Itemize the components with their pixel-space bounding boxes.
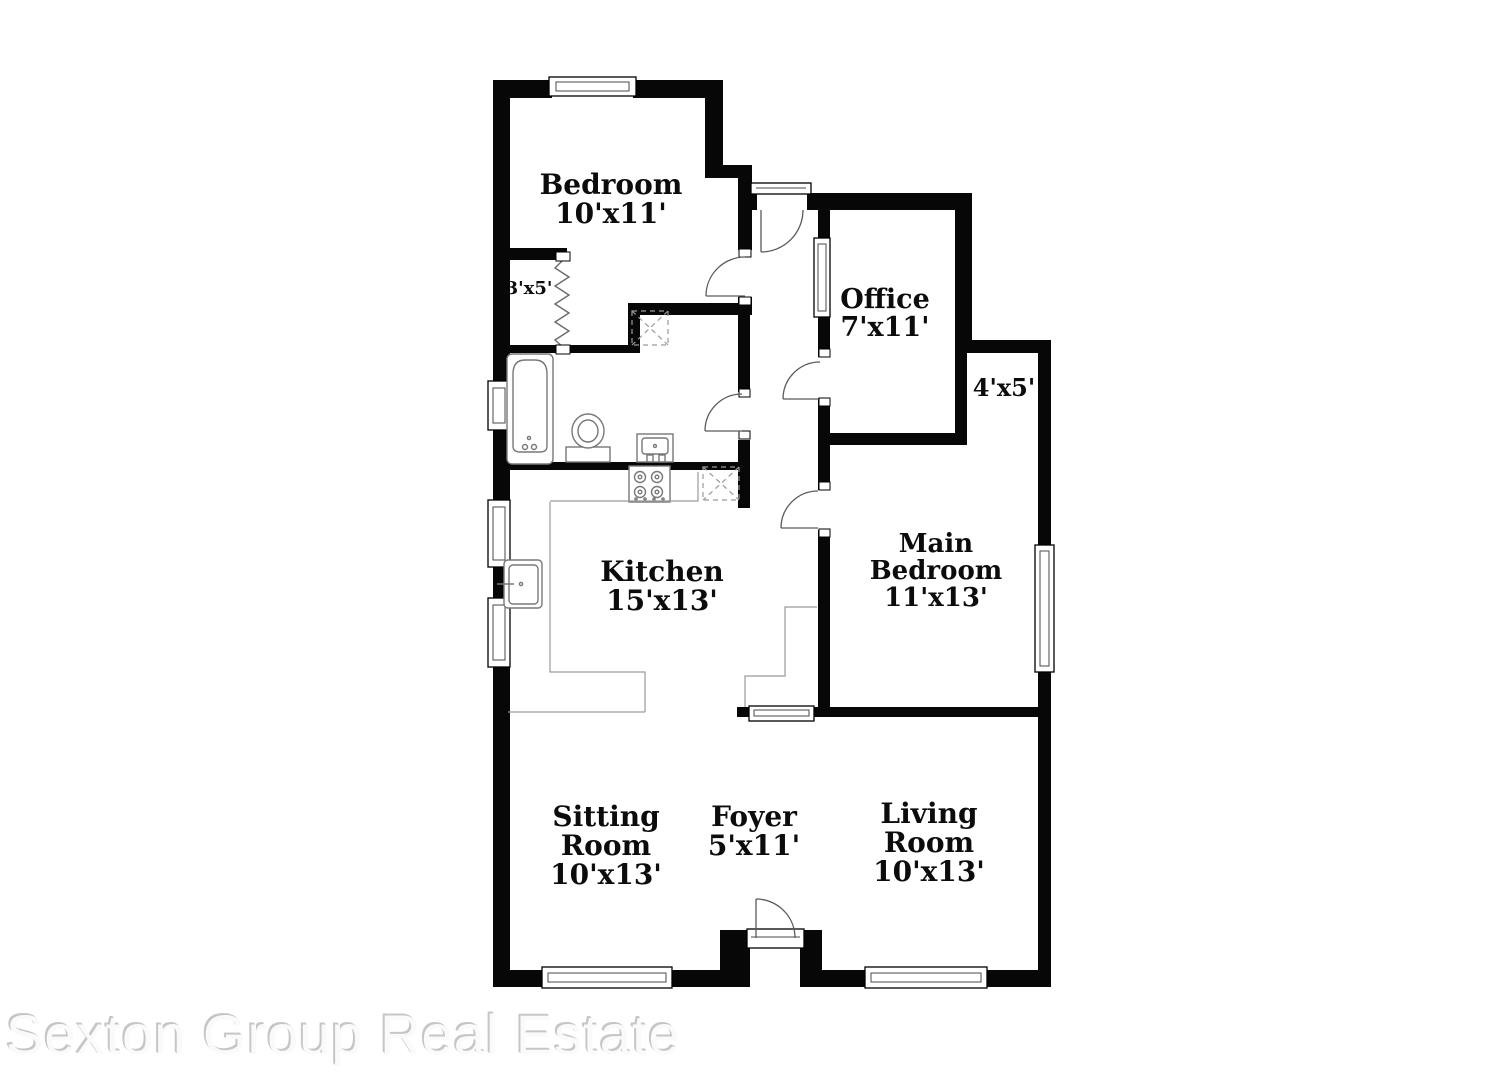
living-room-label: Living Room 10'x13' bbox=[873, 799, 985, 886]
sitting-room-line1: Sitting bbox=[550, 802, 662, 831]
floorplan-drawing bbox=[0, 0, 1485, 1080]
office-name: Office bbox=[840, 286, 930, 314]
closet-accordion-door bbox=[555, 252, 570, 354]
kitchen-label: Kitchen 15'x13' bbox=[600, 557, 723, 615]
steps-outline bbox=[745, 607, 817, 707]
living-room-line2: Room bbox=[873, 828, 985, 857]
foyer-label: Foyer 5'x11' bbox=[708, 802, 800, 860]
closet-label: 3'x5' bbox=[506, 280, 553, 299]
closet-dims: 3'x5' bbox=[506, 280, 553, 299]
stove-icon bbox=[629, 466, 670, 502]
main-bedroom-window bbox=[1035, 545, 1054, 672]
bedroom-label: Bedroom 10'x11' bbox=[540, 170, 683, 228]
foyer-name: Foyer bbox=[708, 802, 800, 831]
sitting-room-window bbox=[542, 967, 672, 988]
toilet-icon bbox=[566, 414, 610, 462]
office-interior-window bbox=[814, 238, 830, 317]
sitting-room-dims: 10'x13' bbox=[550, 860, 662, 889]
hall-foyer-opening bbox=[749, 706, 814, 721]
bedroom-door bbox=[706, 257, 745, 296]
side-door-sill bbox=[751, 183, 811, 194]
bathtub-icon bbox=[507, 354, 553, 464]
sitting-room-label: Sitting Room 10'x13' bbox=[550, 802, 662, 889]
living-room-window bbox=[865, 967, 987, 988]
main-bedroom-label: Main Bedroom 11'x13' bbox=[870, 531, 1003, 612]
kitchen-sink-icon bbox=[497, 560, 542, 608]
kitchen-name: Kitchen bbox=[600, 557, 723, 586]
bedroom-window bbox=[549, 77, 636, 96]
nook-label: 4'x5' bbox=[973, 376, 1035, 401]
side-entry-door bbox=[761, 210, 803, 252]
main-bedroom-door bbox=[781, 491, 818, 528]
bedroom-name: Bedroom bbox=[540, 170, 683, 199]
kitchen-dims: 15'x13' bbox=[600, 586, 723, 615]
main-bedroom-dims: 11'x13' bbox=[870, 585, 1003, 612]
sitting-room-line2: Room bbox=[550, 831, 662, 860]
floorplan-canvas: Bedroom 10'x11' 3'x5' Office 7'x11' 4'x5… bbox=[0, 0, 1485, 1080]
utility-closet-kitchen bbox=[703, 467, 739, 500]
bedroom-dims: 10'x11' bbox=[540, 199, 683, 228]
living-room-dims: 10'x13' bbox=[873, 857, 985, 886]
watermark-text: Sexton Group Real Estate bbox=[6, 1002, 681, 1067]
foyer-dims: 5'x11' bbox=[708, 831, 800, 860]
office-door bbox=[783, 362, 820, 399]
bathroom-door bbox=[705, 394, 742, 431]
living-room-line1: Living bbox=[873, 799, 985, 828]
main-bedroom-line2: Bedroom bbox=[870, 558, 1003, 585]
nook-dims: 4'x5' bbox=[973, 376, 1035, 401]
office-label: Office 7'x11' bbox=[840, 286, 930, 342]
kitchen-window-upper bbox=[488, 500, 510, 567]
office-dims: 7'x11' bbox=[840, 314, 930, 342]
bathroom-sink-icon bbox=[637, 434, 673, 462]
main-bedroom-line1: Main bbox=[870, 531, 1003, 558]
